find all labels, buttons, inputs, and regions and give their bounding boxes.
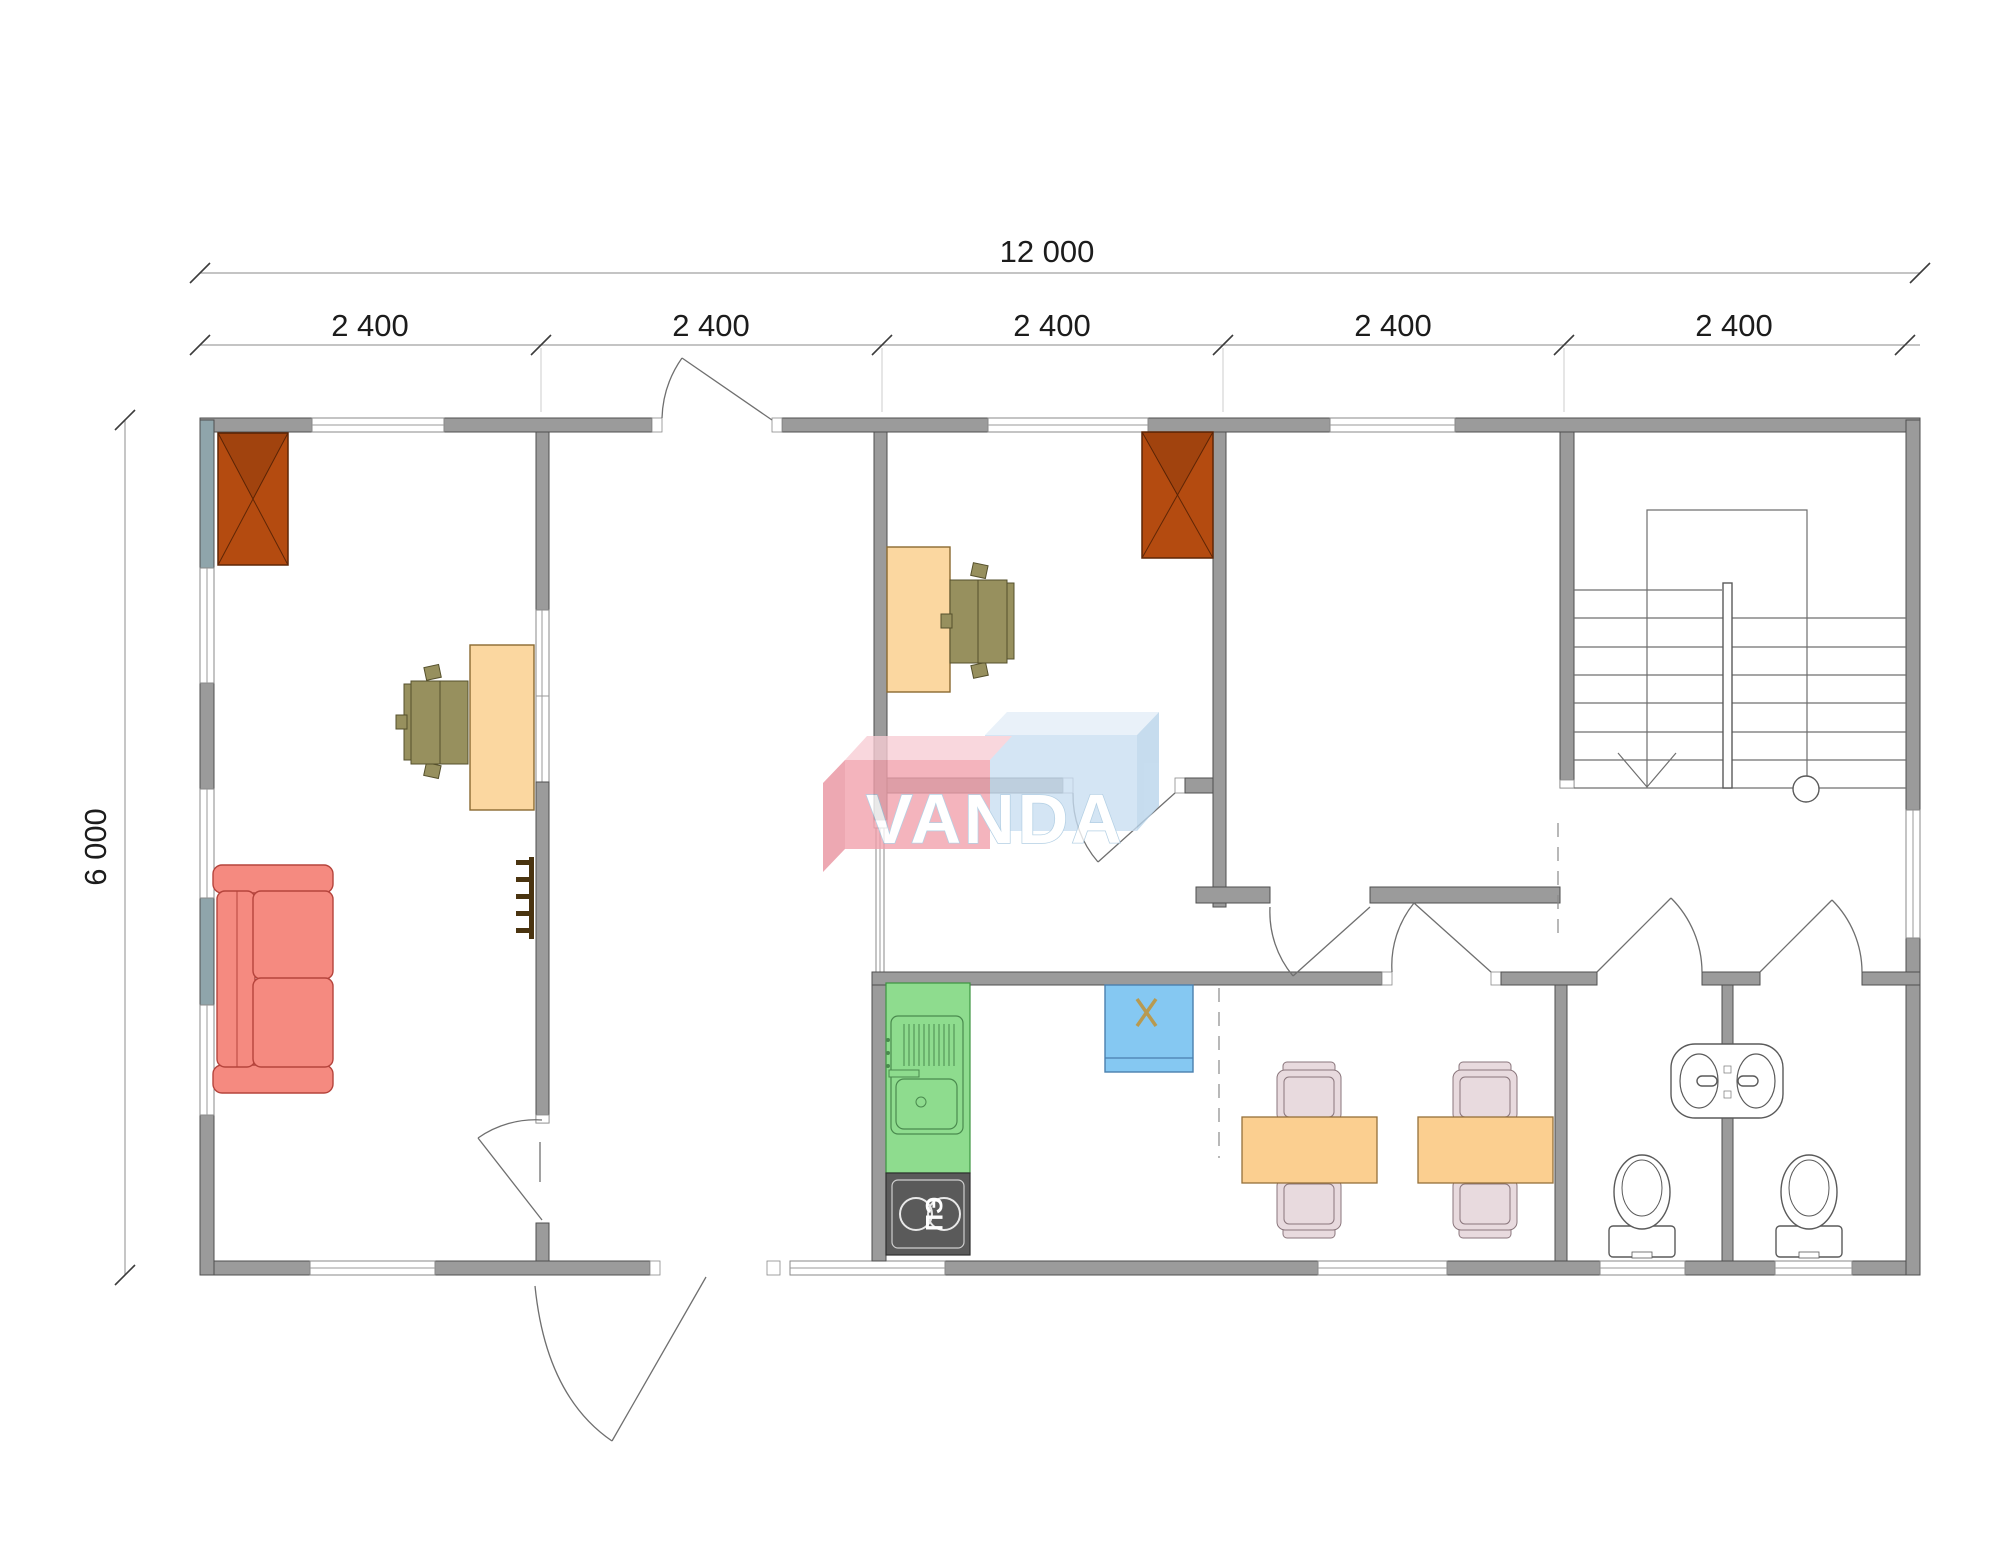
- stove-label: ПЭ: [921, 1197, 948, 1231]
- door-entrance-bottom: [535, 1277, 706, 1441]
- electric-stove: ПЭ: [886, 1173, 970, 1255]
- sofa: [213, 865, 333, 1093]
- interior-walls: [536, 418, 1920, 1275]
- toilet-wc2: [1776, 1155, 1842, 1258]
- dimension-top-total: 12 000: [190, 234, 1930, 283]
- wall-pier-accent-top: [200, 420, 214, 568]
- dining-set-2: [1418, 1062, 1553, 1238]
- dimension-left-height: 6 000: [78, 410, 135, 1285]
- fridge: [1105, 985, 1193, 1072]
- window-bottom-dining: [1318, 1261, 1447, 1275]
- dining-chair: [1277, 1062, 1341, 1122]
- window-left-2: [200, 789, 214, 898]
- dining-table: [1418, 1117, 1553, 1183]
- dining-chair: [1277, 1178, 1341, 1238]
- dining-chair: [1453, 1178, 1517, 1238]
- wardrobe-left-room: [218, 433, 288, 565]
- window-right-stair-hall: [1906, 810, 1920, 938]
- segment-label-5: 2 400: [1695, 308, 1773, 343]
- double-wash-basin: [1671, 1044, 1783, 1118]
- segment-label-2: 2 400: [672, 308, 750, 343]
- tap-right: [1738, 1076, 1758, 1086]
- kitchen-west-wall: [872, 972, 886, 1261]
- total-width-label: 12 000: [1000, 234, 1095, 269]
- door-room-right: [1270, 907, 1370, 976]
- floor-plan-page: 12 000 2 400 2 400 2 400 2 400 2 400 6 0…: [0, 0, 2000, 1563]
- dimension-top-segments: 2 400 2 400 2 400 2 400 2 400: [190, 308, 1920, 412]
- window-top-room-right: [1330, 418, 1455, 432]
- window-bottom-wc2: [1775, 1261, 1852, 1275]
- window-top-office: [988, 418, 1148, 432]
- segment-label-4: 2 400: [1354, 308, 1432, 343]
- floor-plan-canvas: 12 000 2 400 2 400 2 400 2 400 2 400 6 0…: [0, 0, 2000, 1563]
- door-hall-top: [662, 358, 772, 420]
- window-left-3: [200, 1005, 214, 1115]
- office-chair-left-room: [396, 664, 468, 778]
- wall-pier-accent-mid: [200, 898, 214, 1005]
- window-bottom-left-room: [310, 1261, 435, 1275]
- tap-left: [1697, 1076, 1717, 1086]
- desk-left-room: [470, 645, 534, 810]
- window-bottom-hall: [790, 1261, 945, 1275]
- height-label: 6 000: [78, 808, 113, 886]
- door-wc1: [1597, 898, 1702, 972]
- staircase: [1574, 510, 1906, 802]
- dining-table: [1242, 1117, 1377, 1183]
- window-left-1: [200, 568, 214, 683]
- kitchen-sink-counter: [886, 983, 970, 1173]
- segment-label-3: 2 400: [1013, 308, 1091, 343]
- stair-handrail: [1723, 583, 1732, 788]
- stair-newel-post: [1793, 776, 1819, 802]
- door-dining: [1392, 903, 1491, 972]
- coat-hooks: [516, 857, 534, 939]
- watermark-vanda: VANDA: [823, 712, 1159, 872]
- faucet: [889, 1070, 919, 1077]
- dining-set-1: [1242, 1062, 1377, 1238]
- segment-label-1: 2 400: [331, 308, 409, 343]
- window-bottom-wc1: [1600, 1261, 1685, 1275]
- watermark-text: VANDA: [866, 780, 1125, 858]
- office-chair-center: [941, 563, 1014, 679]
- dining-chair: [1453, 1062, 1517, 1122]
- glazed-partition-left-room: [536, 610, 549, 782]
- window-top-left-room: [312, 418, 444, 432]
- door-left-room: [478, 1120, 542, 1220]
- door-wc2: [1760, 900, 1862, 972]
- wardrobe-office-center: [1142, 432, 1213, 558]
- toilet-wc1: [1609, 1155, 1675, 1258]
